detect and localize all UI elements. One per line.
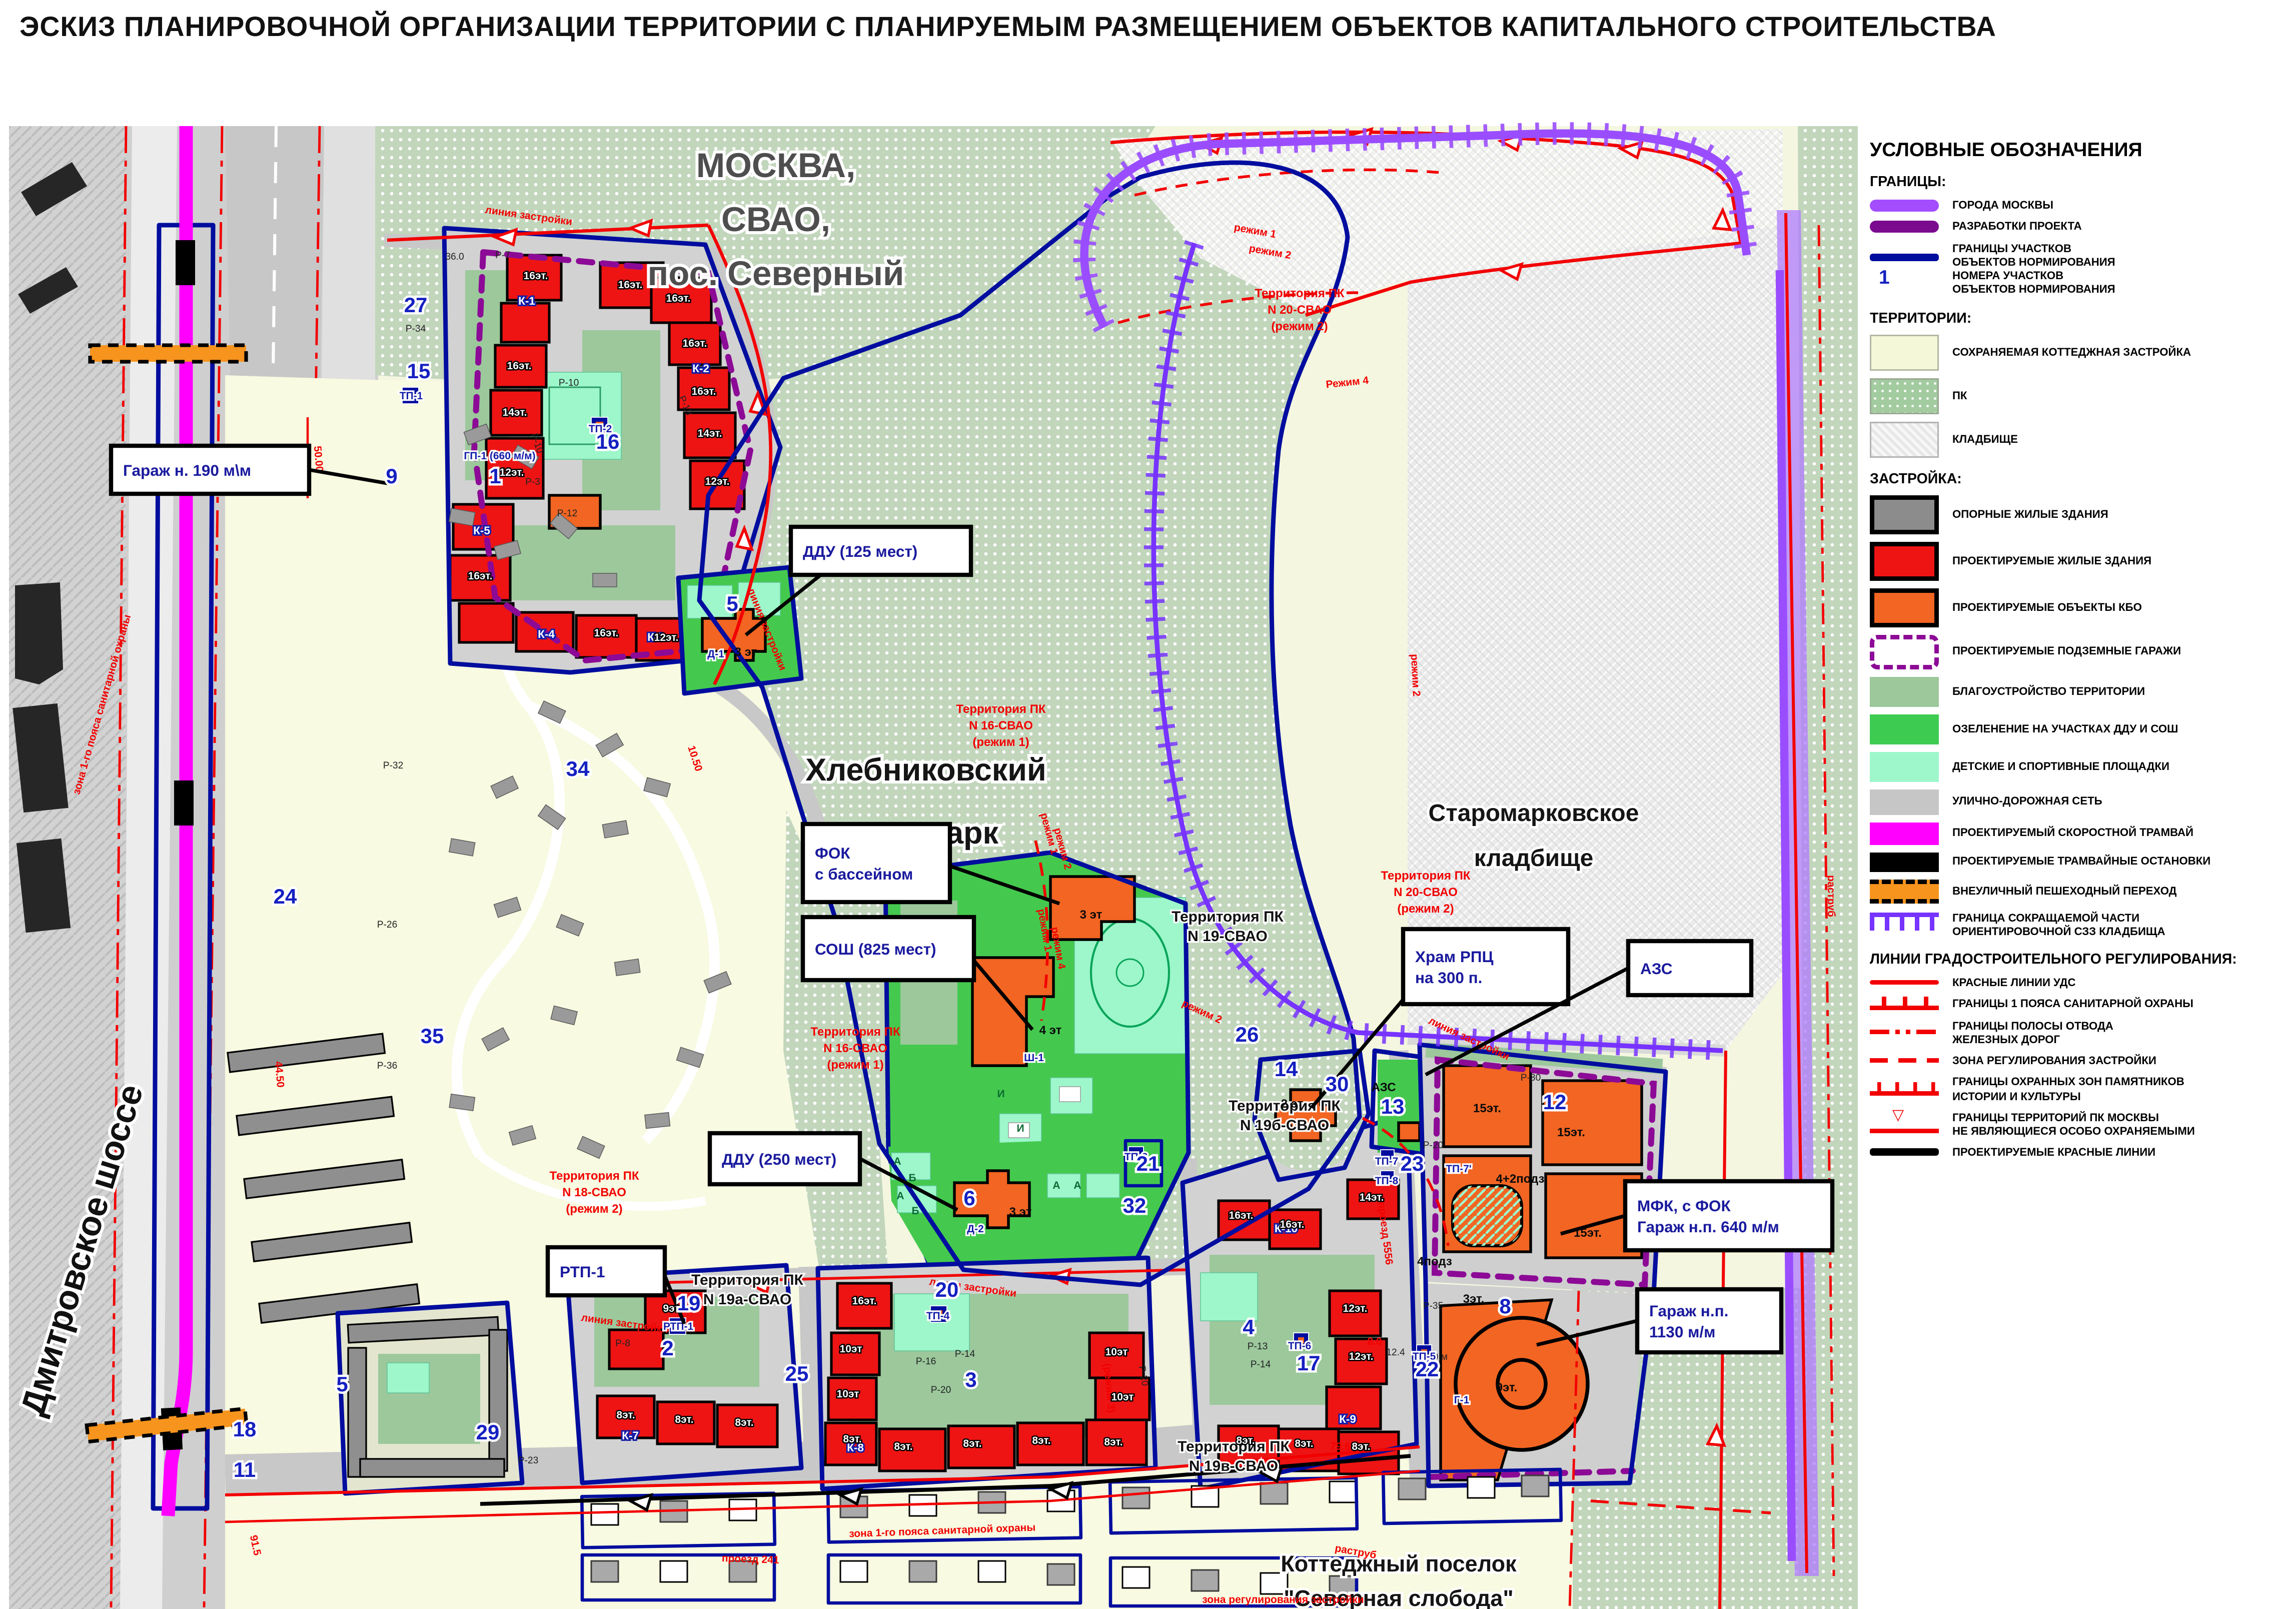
map-label: 15эт. bbox=[1557, 1126, 1585, 1139]
legend-item: ЗОНА РЕГУЛИРОВАНИЯ ЗАСТРОЙКИ bbox=[1870, 1054, 2296, 1068]
green2-swatch bbox=[1870, 714, 1939, 744]
map-label: Б bbox=[911, 1205, 919, 1217]
map-label: 44.50 bbox=[273, 1061, 286, 1088]
legend-item-label: КРАСНЫЕ ЛИНИИ УДС bbox=[1952, 976, 2076, 990]
callout-text: СОШ (825 мест) bbox=[815, 940, 936, 958]
legend-item-label: РАЗРАБОТКИ ПРОЕКТА bbox=[1952, 220, 2082, 234]
map-label: Г-1 bbox=[1454, 1394, 1470, 1406]
legend-item-label: ПРОЕКТИРУЕМЫЕ ЖИЛЫЕ ЗДАНИЯ bbox=[1952, 554, 2151, 568]
parcel-number: 4 bbox=[1243, 1315, 1255, 1339]
parcel-number: 12 bbox=[1543, 1090, 1567, 1114]
stop-swatch bbox=[1870, 852, 1939, 872]
map-label: К-2 bbox=[692, 362, 709, 375]
map-label: Р-36 bbox=[377, 1061, 398, 1071]
map-label: раструб bbox=[1825, 875, 1837, 917]
map-label: К-7 bbox=[622, 1429, 639, 1442]
parcel-number: 25 bbox=[785, 1362, 809, 1385]
line-project-swatch bbox=[1870, 221, 1939, 233]
map-label: Р-14 bbox=[955, 1349, 975, 1359]
legend: УСЛОВНЫЕ ОБОЗНАЧЕНИЯ ГРАНИЦЫ:ГОРОДА МОСК… bbox=[1870, 138, 2296, 1167]
map-label: Р-16 bbox=[916, 1356, 936, 1367]
map-label: Р-20 bbox=[931, 1385, 951, 1395]
szz-swatch bbox=[1870, 912, 1939, 936]
parcel-number: 6 bbox=[963, 1186, 975, 1210]
map-label: 16эт. bbox=[507, 360, 532, 372]
parcel-number: 27 bbox=[404, 293, 428, 317]
parcel-number: 32 bbox=[1123, 1194, 1146, 1217]
map-label: 9эт. bbox=[1496, 1381, 1518, 1394]
line-city-swatch bbox=[1870, 199, 1939, 211]
parcel-number: 29 bbox=[476, 1420, 500, 1444]
map-label: 36.0 bbox=[445, 252, 464, 262]
parcel-number: 1 bbox=[489, 464, 501, 488]
map-label: Р-34 bbox=[406, 324, 426, 334]
callout-text: АЗС bbox=[1640, 960, 1672, 978]
legend-item-label: ПРОЕКТИРУЕМЫЙ СКОРОСТНОЙ ТРАМВАЙ bbox=[1952, 826, 2193, 840]
map-label: 10эт bbox=[840, 1343, 862, 1355]
map-label: 8эт. bbox=[1236, 1435, 1255, 1446]
map-label: ТП-1 bbox=[400, 390, 423, 402]
legend-item-label: ГРАНИЦЫ УЧАСТКОВ ОБЪЕКТОВ НОРМИРОВАНИЯ Н… bbox=[1952, 241, 2115, 297]
red-dash-swatch bbox=[1870, 1058, 1939, 1063]
map-label: Б bbox=[908, 1172, 916, 1184]
callout-text: РТП-1 bbox=[560, 1263, 605, 1281]
parcel-number: 16 bbox=[596, 430, 620, 453]
legend-item: КРАСНЫЕ ЛИНИИ УДС bbox=[1870, 976, 2296, 990]
map-label: 16эт. bbox=[1229, 1210, 1254, 1221]
green-swatch bbox=[1870, 676, 1939, 706]
map-label: ГП-1 (660 м/м) bbox=[464, 450, 535, 462]
legend-item: ГРАНИЦА СОКРАЩАЕМОЙ ЧАСТИ ОРИЕНТИРОВОЧНО… bbox=[1870, 911, 2296, 939]
parcel-number: 22 bbox=[1416, 1357, 1439, 1381]
legend-item: ОЗЕЛЕНЕНИЕ НА УЧАСТКАХ ДДУ И СОШ bbox=[1870, 714, 2296, 744]
map-label: 4подз bbox=[1417, 1255, 1452, 1268]
planning-sketch-page: ЭСКИЗ ПЛАНИРОВОЧНОЙ ОРГАНИЗАЦИИ ТЕРРИТОР… bbox=[0, 0, 2296, 1609]
legend-item-label: ПРОЕКТИРУЕМЫЕ ОБЪЕКТЫ КБО bbox=[1952, 600, 2142, 614]
map-label: 8эт. bbox=[894, 1441, 912, 1452]
parcel-number: 5 bbox=[336, 1372, 348, 1396]
legend-item-label: ГРАНИЦА СОКРАЩАЕМОЙ ЧАСТИ ОРИЕНТИРОВОЧНО… bbox=[1952, 911, 2165, 939]
parcel-number: 3 bbox=[965, 1368, 976, 1391]
parcel-number: 26 bbox=[1236, 1023, 1259, 1046]
legend-item-label: ПРОЕКТИРУЕМЫЕ ТРАМВАЙНЫЕ ОСТАНОВКИ bbox=[1952, 855, 2210, 869]
callout-box bbox=[1637, 1289, 1781, 1352]
mint-swatch bbox=[1870, 751, 1939, 781]
legend-title: УСЛОВНЫЕ ОБОЗНАЧЕНИЯ bbox=[1870, 138, 2296, 161]
map-label: 16эт. bbox=[692, 386, 716, 397]
map-label: 8эт. bbox=[843, 1433, 861, 1445]
map-label: Р-14 bbox=[1251, 1359, 1271, 1370]
parcel-number: 20 bbox=[935, 1278, 959, 1301]
map-label: 4+2подз bbox=[1496, 1172, 1544, 1186]
legend-item: ПК bbox=[1870, 378, 2296, 414]
legend-parcel-number: 1 bbox=[1870, 261, 1939, 288]
ddu125-parcel bbox=[678, 567, 801, 693]
map-label: 8эт. bbox=[1352, 1441, 1370, 1452]
legend-section-title: ТЕРРИТОРИИ: bbox=[1870, 310, 2296, 327]
parcel-number: 9 bbox=[386, 464, 397, 488]
tram-stop bbox=[174, 780, 194, 826]
red-solid-swatch bbox=[1870, 980, 1939, 985]
map-label: 16эт. bbox=[683, 338, 707, 349]
map-label: 3эт. bbox=[1463, 1292, 1485, 1306]
map-label: ТП-7' bbox=[1446, 1163, 1472, 1175]
map-label: 16эт. bbox=[1280, 1219, 1305, 1230]
parcel-number: 19 bbox=[677, 1291, 701, 1315]
legend-item-label: ПРОЕКТИРУЕМЫЕ КРАСНЫЕ ЛИНИИ bbox=[1952, 1146, 2155, 1160]
map-label: Р-10 bbox=[559, 378, 579, 388]
parcel-number: 13 bbox=[1381, 1095, 1405, 1118]
parcel-number: 18 bbox=[233, 1417, 257, 1441]
legend-item: БЛАГОУСТРОЙСТВО ТЕРРИТОРИИ bbox=[1870, 676, 2296, 706]
map-label: 14эт. bbox=[698, 428, 722, 439]
map-label: 8эт. bbox=[1104, 1436, 1122, 1448]
parcel-number: 2 bbox=[662, 1336, 673, 1360]
map-label: 12эт. bbox=[1343, 1303, 1368, 1314]
map-label: И bbox=[997, 1088, 1004, 1100]
legend-item: ПРОЕКТИРУЕМЫЕ ПОДЗЕМНЫЕ ГАРАЖИ bbox=[1870, 634, 2296, 669]
legend-item-label: ГОРОДА МОСКВЫ bbox=[1952, 198, 2053, 212]
legend-item-label: ГРАНИЦЫ ПОЛОСЫ ОТВОДА ЖЕЛЕЗНЫХ ДОРОГ bbox=[1952, 1019, 2113, 1047]
cross-swatch bbox=[1870, 879, 1939, 903]
legend-item: УЛИЧНО-ДОРОЖНАЯ СЕТЬ bbox=[1870, 789, 2296, 815]
map-label: Р-13 bbox=[1248, 1341, 1268, 1352]
map-label: 12эт. bbox=[500, 467, 524, 478]
map-label: 8.0 bbox=[1367, 1336, 1382, 1347]
map-label: К-9 bbox=[1339, 1413, 1356, 1425]
map-label: 16эт. bbox=[852, 1295, 877, 1307]
parcel-number: 34 bbox=[566, 757, 590, 780]
callout-text: ДДУ (250 мест) bbox=[722, 1150, 836, 1168]
callout-box bbox=[1403, 929, 1568, 1004]
map-label: зона регулирования застройки bbox=[1202, 1594, 1364, 1605]
parcel-number: 35 bbox=[421, 1024, 444, 1048]
legend-item: СОХРАНЯЕМАЯ КОТТЕДЖНАЯ ЗАСТРОЙКА bbox=[1870, 334, 2296, 370]
map-label: Р-32 bbox=[383, 760, 404, 771]
map-label: И bbox=[1016, 1123, 1024, 1134]
gray-swatch bbox=[1870, 495, 1939, 534]
garage-swatch bbox=[1870, 634, 1939, 669]
map-label: Р-20 bbox=[1423, 1140, 1444, 1151]
map-label: 3 эт bbox=[1009, 1205, 1032, 1219]
orange-swatch bbox=[1870, 588, 1939, 627]
map-label: 15эт. bbox=[1473, 1102, 1501, 1115]
legend-item-label: ОПОРНЫЕ ЖИЛЫЕ ЗДАНИЯ bbox=[1952, 507, 2108, 521]
callout-text: Гараж н. 190 м\м bbox=[123, 461, 251, 479]
map-label: 50.00 bbox=[312, 445, 325, 472]
parcel-number: 8 bbox=[1499, 1294, 1511, 1318]
map-label: ТП-8 bbox=[1375, 1175, 1399, 1187]
map-label: 12эт. bbox=[654, 632, 679, 643]
legend-section-title: ГРАНИЦЫ: bbox=[1870, 174, 2296, 191]
map-label: 2 эт bbox=[1281, 1097, 1304, 1111]
road-swatch bbox=[1870, 789, 1939, 815]
callout-text: ДДУ (125 мест) bbox=[803, 542, 917, 560]
map-label: К-5 bbox=[473, 524, 490, 537]
legend-item: ПРОЕКТИРУЕМЫЕ ОБЪЕКТЫ КБО bbox=[1870, 588, 2296, 627]
legend-item-label: БЛАГОУСТРОЙСТВО ТЕРРИТОРИИ bbox=[1952, 684, 2145, 698]
map-label: 8эт. bbox=[1295, 1438, 1313, 1449]
legend-item: ПРОЕКТИРУЕМЫЕ КРАСНЫЕ ЛИНИИ bbox=[1870, 1146, 2296, 1160]
parcel-number: 17 bbox=[1297, 1351, 1321, 1375]
red-dashdot-swatch bbox=[1870, 1030, 1939, 1035]
map-label: Р-30 bbox=[1521, 1073, 1541, 1083]
red-tri-swatch bbox=[1870, 1116, 1939, 1133]
legend-item-label: КЛАДБИЩЕ bbox=[1952, 432, 2018, 446]
map-label: 8эт. bbox=[735, 1417, 753, 1428]
parcel-number: 11 bbox=[234, 1458, 256, 1481]
legend-item-label: ГРАНИЦЫ ОХРАННЫХ ЗОН ПАМЯТНИКОВ ИСТОРИИ … bbox=[1952, 1075, 2184, 1103]
map-label: ТП-4 bbox=[926, 1310, 950, 1322]
legend-item: РАЗРАБОТКИ ПРОЕКТА bbox=[1870, 220, 2296, 234]
legend-item-label: СОХРАНЯЕМАЯ КОТТЕДЖНАЯ ЗАСТРОЙКА bbox=[1952, 345, 2191, 359]
parcel-number: 23 bbox=[1401, 1152, 1424, 1175]
map-label: К-1 bbox=[518, 295, 535, 307]
legend-item-label: ПРОЕКТИРУЕМЫЕ ПОДЗЕМНЫЕ ГАРАЖИ bbox=[1952, 644, 2181, 658]
legend-item-label: ГРАНИЦЫ ТЕРРИТОРИЙ ПК МОСКВЫ НЕ ЯВЛЯЮЩИЕ… bbox=[1952, 1110, 2195, 1138]
map-label: Р-7 bbox=[495, 250, 510, 261]
map-label: ТП-7 bbox=[1375, 1156, 1399, 1167]
map-label: режим 2 bbox=[1409, 654, 1422, 697]
legend-section-title: ЛИНИИ ГРАДОСТРОИТЕЛЬНОГО РЕГУЛИРОВАНИЯ: bbox=[1870, 952, 2296, 968]
legend-item: ГРАНИЦЫ ТЕРРИТОРИЙ ПК МОСКВЫ НЕ ЯВЛЯЮЩИЕ… bbox=[1870, 1110, 2296, 1138]
red-swatch bbox=[1870, 541, 1939, 580]
legend-item-label: ПК bbox=[1952, 389, 1967, 403]
legend-item-label: ЗОНА РЕГУЛИРОВАНИЯ ЗАСТРОЙКИ bbox=[1952, 1054, 2156, 1068]
map-label: 16эт. bbox=[618, 279, 643, 291]
map-label: Р-3 bbox=[525, 477, 540, 487]
legend-item-label: ДЕТСКИЕ И СПОРТИВНЫЕ ПЛОЩАДКИ bbox=[1952, 759, 2169, 773]
line-parcel-swatch: 1 bbox=[1870, 250, 1939, 288]
map-label: А bbox=[893, 1156, 901, 1167]
parcel-number: 30 bbox=[1326, 1072, 1349, 1096]
map-label: Р-26 bbox=[377, 920, 398, 930]
map-label: 16эт. bbox=[524, 270, 548, 282]
map-label: проезд 241 bbox=[722, 1552, 780, 1566]
red-tick2-swatch bbox=[1870, 1082, 1939, 1096]
legend-item-label: ГРАНИЦЫ 1 ПОЯСА САНИТАРНОЙ ОХРАНЫ bbox=[1952, 997, 2193, 1011]
map-label: 10эт bbox=[1105, 1346, 1128, 1358]
azs-label: АЗС bbox=[1371, 1081, 1396, 1094]
map-label: А bbox=[1073, 1180, 1081, 1191]
map-label: ТП-6 bbox=[1288, 1340, 1312, 1352]
map-label: 14эт. bbox=[503, 407, 527, 418]
legend-item: ВНЕУЛИЧНЫЙ ПЕШЕХОДНЫЙ ПЕРЕХОД bbox=[1870, 879, 2296, 903]
map-label: 12эт. bbox=[1349, 1351, 1374, 1362]
map-label: Д-1 bbox=[707, 648, 724, 660]
map-label: 16эт. bbox=[594, 627, 619, 639]
legend-item: ДЕТСКИЕ И СПОРТИВНЫЕ ПЛОЩАДКИ bbox=[1870, 751, 2296, 781]
map-label: Р-8 bbox=[615, 1338, 630, 1349]
map-label: 16эт. bbox=[666, 293, 691, 304]
map-label: А bbox=[896, 1190, 904, 1202]
legend-body: ГРАНИЦЫ:ГОРОДА МОСКВЫРАЗРАБОТКИ ПРОЕКТА1… bbox=[1870, 174, 2296, 1160]
map-label: 16эт. bbox=[468, 570, 493, 582]
legend-item: ГРАНИЦЫ ПОЛОСЫ ОТВОДА ЖЕЛЕЗНЫХ ДОРОГ bbox=[1870, 1019, 2296, 1047]
legend-item: ПРОЕКТИРУЕМЫЕ ЖИЛЫЕ ЗДАНИЯ bbox=[1870, 541, 2296, 580]
map-label: Р-23 bbox=[518, 1455, 539, 1466]
map-label: А bbox=[1052, 1180, 1060, 1191]
legend-item: ГОРОДА МОСКВЫ bbox=[1870, 198, 2296, 212]
map-label: 10эт bbox=[837, 1388, 859, 1400]
legend-item-label: ОЗЕЛЕНЕНИЕ НА УЧАСТКАХ ДДУ И СОШ bbox=[1952, 722, 2178, 736]
legend-item: ОПОРНЫЕ ЖИЛЫЕ ЗДАНИЯ bbox=[1870, 495, 2296, 534]
callout-box bbox=[1625, 1181, 1832, 1250]
legend-section-title: ЗАСТРОЙКА: bbox=[1870, 471, 2296, 487]
map-label: 8эт. bbox=[675, 1414, 693, 1425]
legend-item-label: УЛИЧНО-ДОРОЖНАЯ СЕТЬ bbox=[1952, 794, 2102, 809]
map-label: 8эт. bbox=[1032, 1435, 1050, 1446]
pk-swatch bbox=[1870, 378, 1939, 414]
tram-swatch bbox=[1870, 822, 1939, 845]
map-label: 12эт. bbox=[705, 476, 730, 487]
map-label: 12.4 bbox=[1386, 1347, 1405, 1358]
parcel-number: 24 bbox=[274, 885, 297, 908]
legend-item: 1ГРАНИЦЫ УЧАСТКОВ ОБЪЕКТОВ НОРМИРОВАНИЯ … bbox=[1870, 241, 2296, 297]
parcel-number: 15 bbox=[407, 359, 431, 383]
cottage-swatch bbox=[1870, 334, 1939, 370]
parcel-number: 21 bbox=[1136, 1152, 1160, 1175]
map-label: РТП-1 bbox=[663, 1321, 694, 1332]
parcel-number: 14 bbox=[1275, 1057, 1298, 1081]
map-label: Р-12 bbox=[557, 508, 578, 519]
legend-item: ПРОЕКТИРУЕМЫЙ СКОРОСТНОЙ ТРАМВАЙ bbox=[1870, 822, 2296, 845]
map-label: 4 эт bbox=[1039, 1024, 1062, 1037]
legend-item-label: ВНЕУЛИЧНЫЙ ПЕШЕХОДНЫЙ ПЕРЕХОД bbox=[1952, 884, 2177, 898]
map-label: 8эт. bbox=[616, 1409, 635, 1421]
parcel-number: 5 bbox=[726, 592, 738, 615]
map-label: К-4 bbox=[538, 628, 555, 640]
map-label: 8эт. bbox=[963, 1438, 981, 1449]
map-label: 10эт bbox=[1111, 1391, 1134, 1403]
map-label: 79.6 bbox=[1330, 1440, 1351, 1453]
map-label: Ш-1 bbox=[1024, 1052, 1044, 1064]
legend-item: ПРОЕКТИРУЕМЫЕ ТРАМВАЙНЫЕ ОСТАНОВКИ bbox=[1870, 852, 2296, 872]
legend-item: ГРАНИЦЫ ОХРАННЫХ ЗОН ПАМЯТНИКОВ ИСТОРИИ … bbox=[1870, 1075, 2296, 1103]
black-swatch bbox=[1870, 1149, 1939, 1156]
map-label: 3 эт bbox=[1080, 908, 1102, 922]
map-label: 14эт. bbox=[1360, 1192, 1384, 1203]
map-label: 3 эт bbox=[735, 645, 757, 659]
map-label: Р-35 bbox=[1423, 1301, 1444, 1311]
callout-box bbox=[803, 824, 950, 902]
map-label: Д-2 bbox=[967, 1223, 984, 1235]
legend-item: ГРАНИЦЫ 1 ПОЯСА САНИТАРНОЙ ОХРАНЫ bbox=[1870, 997, 2296, 1011]
tram-stop bbox=[176, 240, 195, 285]
red-tick-swatch bbox=[1870, 997, 1939, 1011]
legend-item: КЛАДБИЩЕ bbox=[1870, 421, 2296, 457]
cemetery-swatch bbox=[1870, 421, 1939, 457]
